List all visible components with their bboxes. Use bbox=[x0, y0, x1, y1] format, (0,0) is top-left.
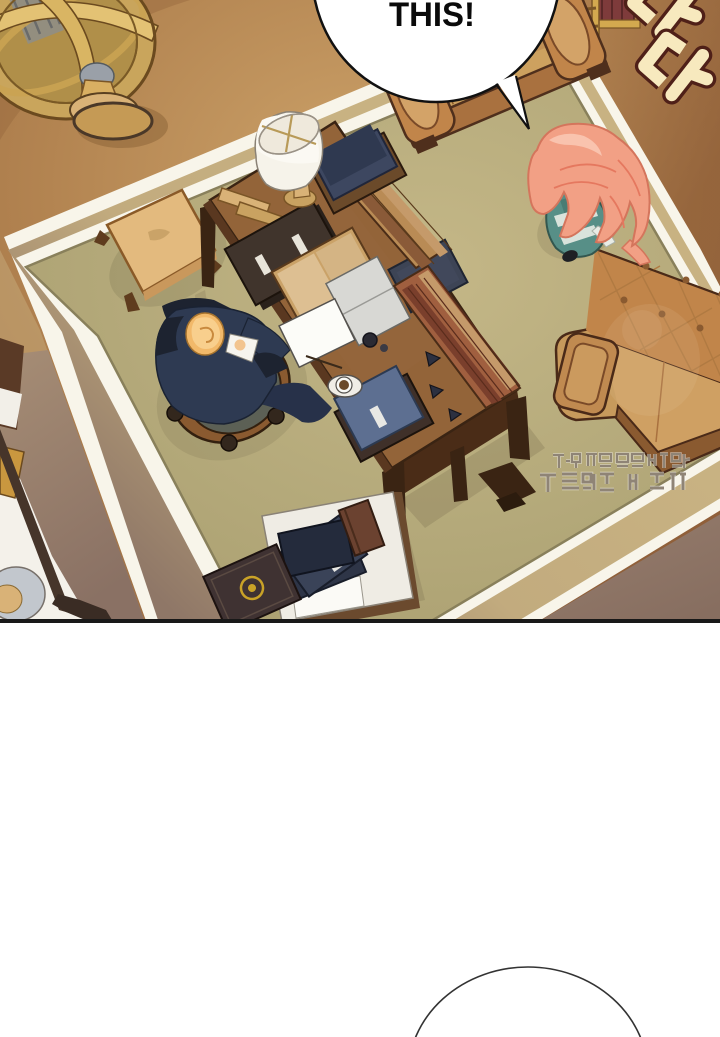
svg-text:THIS!: THIS! bbox=[389, 0, 475, 34]
